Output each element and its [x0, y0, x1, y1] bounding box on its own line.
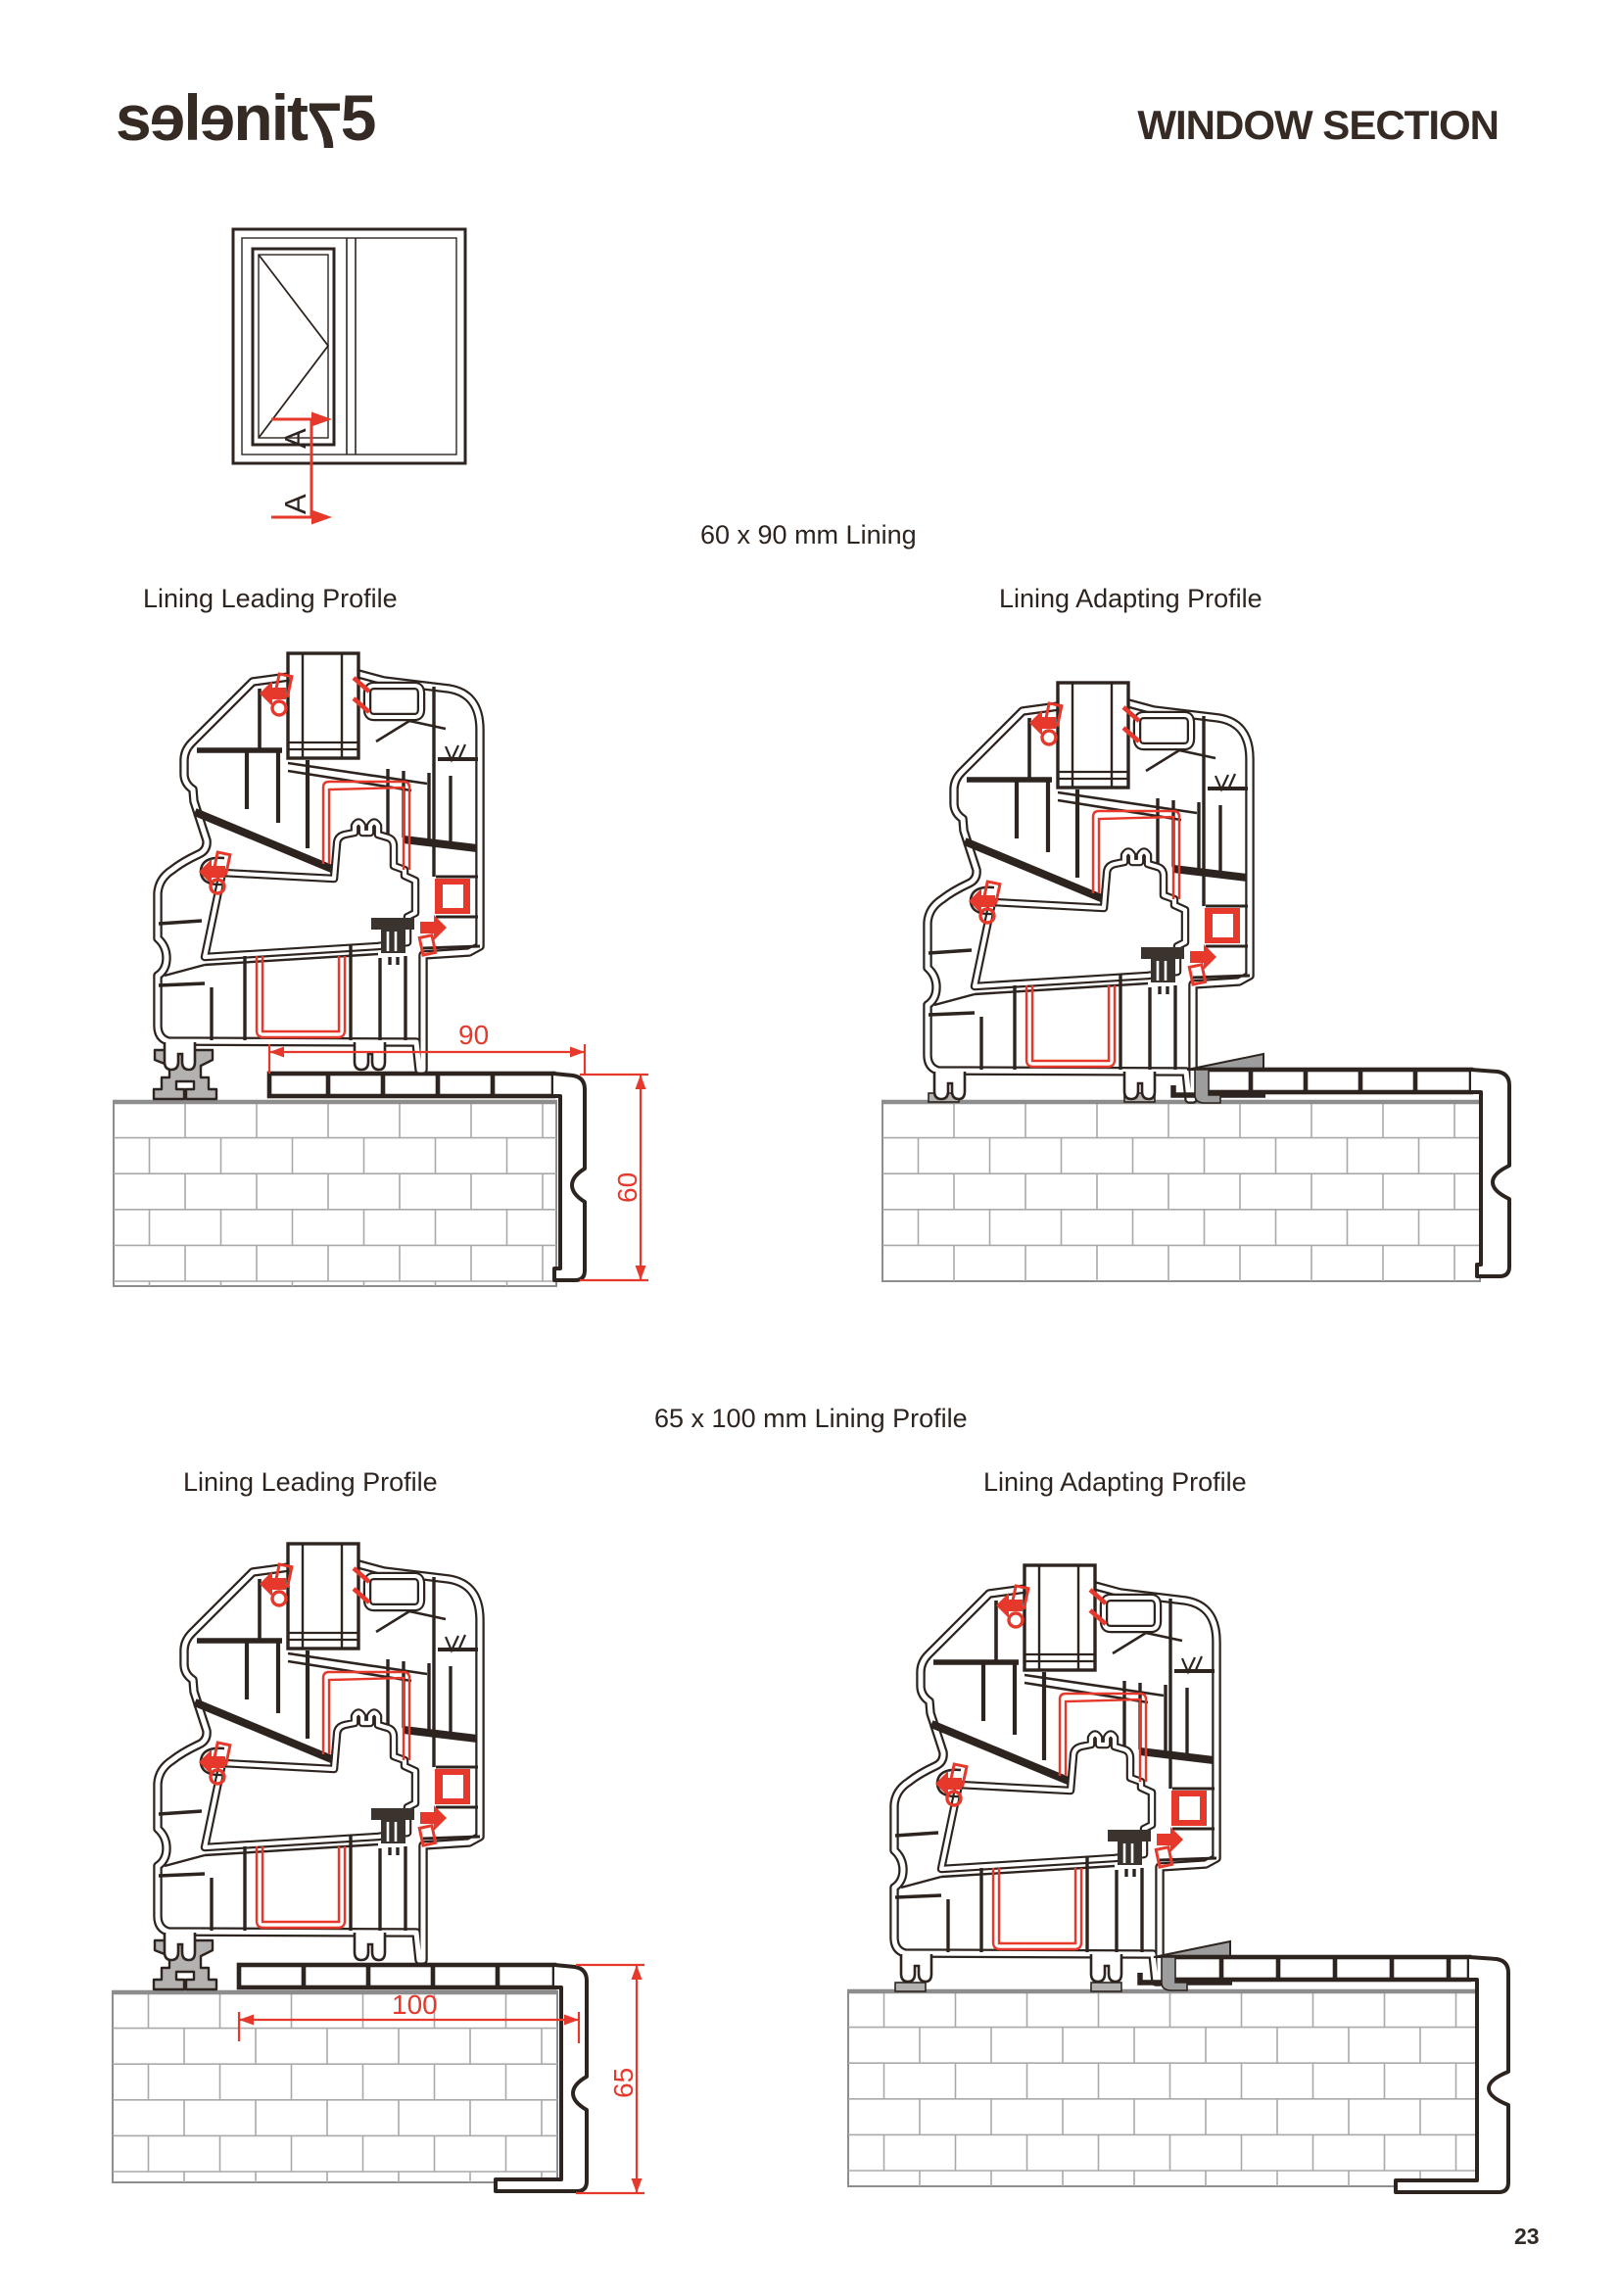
- svg-text:7: 7: [307, 89, 343, 162]
- svg-text:Lining Leading Profile: Lining Leading Profile: [143, 584, 398, 613]
- svg-text:65: 65: [608, 2068, 639, 2098]
- svg-text:65 x 100 mm Lining Profile: 65 x 100 mm Lining Profile: [654, 1404, 968, 1433]
- svg-text:WINDOW SECTION: WINDOW SECTION: [1137, 102, 1499, 148]
- svg-text:l: l: [183, 81, 199, 154]
- svg-text:60 x 90 mm Lining: 60 x 90 mm Lining: [700, 520, 917, 550]
- svg-text:5: 5: [341, 81, 375, 154]
- svg-text:e: e: [150, 81, 186, 154]
- svg-text:Lining Adapting Profile: Lining Adapting Profile: [999, 584, 1263, 613]
- svg-text:e: e: [200, 81, 236, 154]
- svg-text:23: 23: [1514, 2224, 1540, 2249]
- svg-text:90: 90: [458, 1020, 489, 1050]
- svg-text:60: 60: [612, 1172, 643, 1203]
- svg-text:Lining Leading Profile: Lining Leading Profile: [183, 1467, 438, 1497]
- svg-text:100: 100: [392, 1989, 438, 2020]
- svg-text:A: A: [278, 494, 312, 514]
- svg-text:s: s: [116, 81, 150, 154]
- svg-text:nit: nit: [233, 81, 309, 154]
- svg-text:A: A: [278, 428, 312, 449]
- svg-text:Lining Adapting Profile: Lining Adapting Profile: [983, 1467, 1247, 1497]
